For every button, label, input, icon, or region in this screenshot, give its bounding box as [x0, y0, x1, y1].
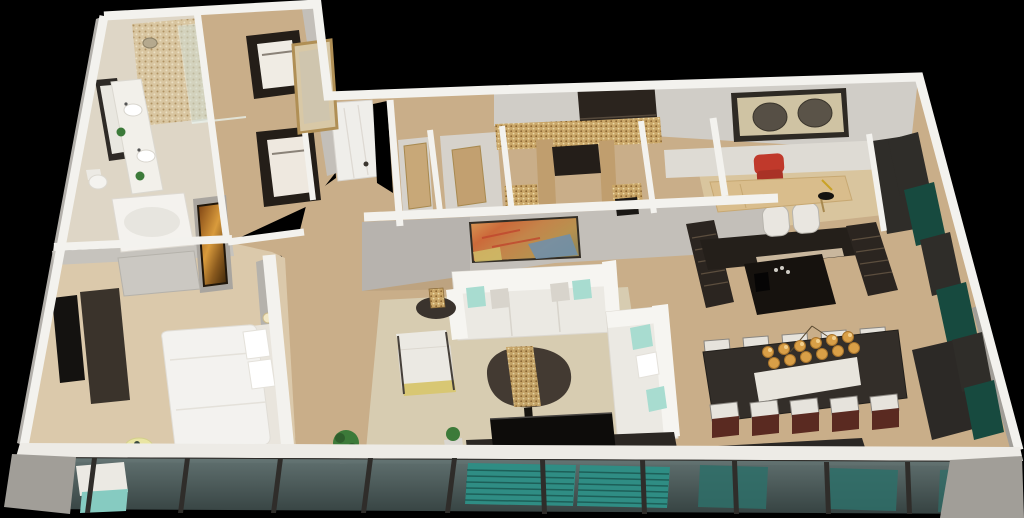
sink — [137, 150, 155, 162]
bar-stool — [792, 202, 821, 234]
vanity-plant — [136, 172, 145, 181]
shower-drain — [143, 38, 157, 48]
gray-pillow — [550, 282, 570, 302]
artwork-circle-left — [753, 103, 787, 131]
small-plant — [446, 427, 460, 441]
mint-pillow — [646, 386, 667, 412]
chair-frame — [872, 408, 899, 430]
teal-louver-screens — [465, 463, 670, 508]
desk-lamp-base — [818, 192, 834, 200]
coffee-machine — [754, 272, 770, 292]
mint-pillow — [630, 324, 653, 350]
window-wall — [4, 443, 1024, 518]
bar-stool — [762, 205, 791, 237]
patterned-lamp — [429, 288, 445, 308]
chair-frame — [832, 410, 859, 432]
pillow — [248, 359, 275, 389]
toilet — [89, 175, 107, 189]
floor-plan-render: 3D rendered aerial cutaway floor plan of… — [0, 0, 1024, 518]
white-pillow — [636, 352, 659, 378]
foyer-base-cabinet — [552, 144, 601, 176]
closet-white-door — [330, 100, 380, 181]
hall-wood-door — [404, 143, 431, 209]
mint-pillow — [572, 279, 592, 300]
faucet — [137, 148, 140, 151]
louver-screen — [577, 465, 670, 508]
vanity-plant — [117, 128, 126, 137]
upholstered-bench — [118, 251, 200, 296]
bottle — [786, 270, 790, 274]
chair-frame — [712, 416, 739, 438]
bottle — [774, 268, 778, 272]
right-concrete-corner — [940, 456, 1024, 518]
sink — [124, 104, 142, 116]
louver-screen — [465, 463, 576, 506]
teal-glass-panel — [828, 468, 898, 511]
artwork-circle-right — [798, 99, 832, 127]
floor-plan-canvas — [0, 0, 1024, 518]
pillow — [243, 329, 270, 359]
bottle — [780, 266, 784, 270]
faucet — [124, 102, 127, 105]
bathtub-basin — [124, 207, 180, 237]
hall-wood-door-2 — [452, 146, 486, 206]
door-handle — [364, 162, 369, 167]
mint-pillow — [466, 286, 486, 308]
chair-frame — [792, 412, 819, 434]
chair-frame — [752, 414, 779, 436]
left-concrete-corner — [4, 454, 76, 514]
gray-pillow — [490, 288, 510, 309]
plant-leaves — [335, 433, 345, 443]
